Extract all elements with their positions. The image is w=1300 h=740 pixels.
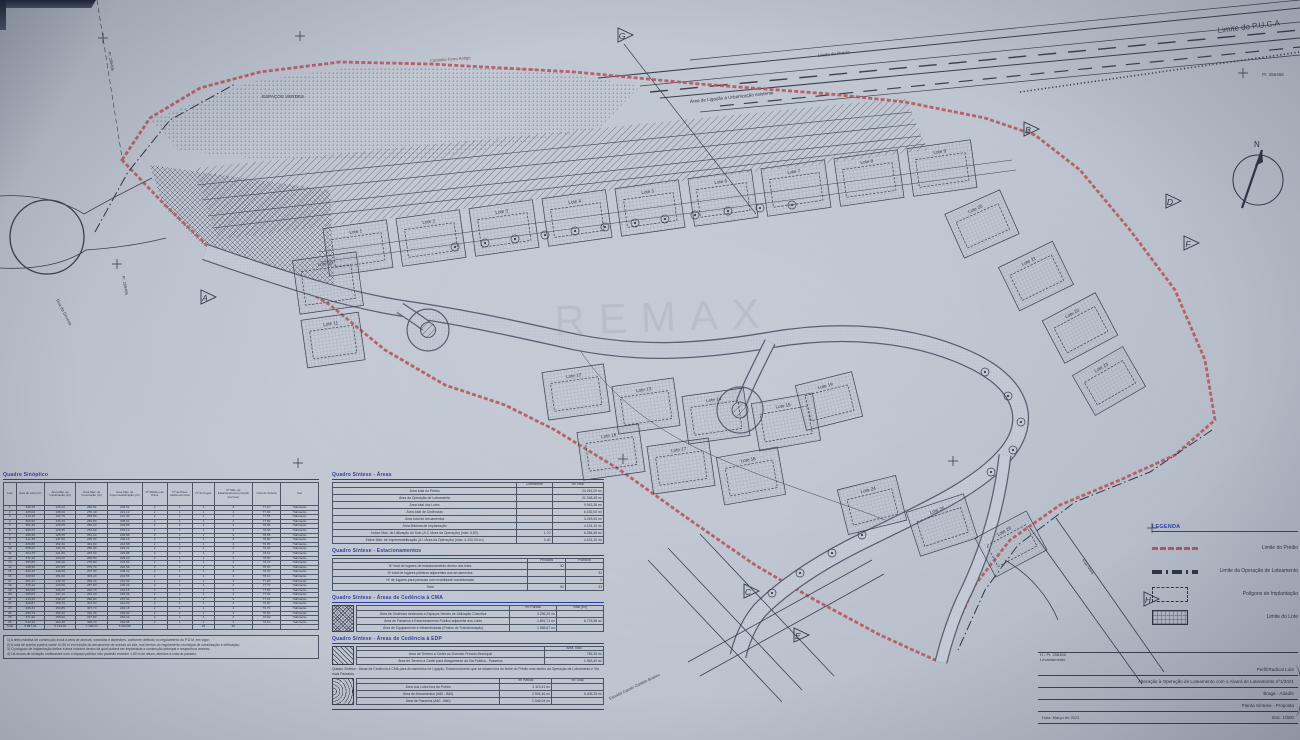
table-row: Índice Máx. de Utilização do Solo (A.C./…	[333, 529, 604, 536]
diagonal-swatch	[332, 646, 354, 666]
puca-label: Limite do P.U.C.A	[1217, 18, 1281, 35]
mark-topleft-label: Pr. 256495	[107, 51, 115, 72]
lot: Lote 4	[542, 190, 612, 246]
quadro-cedencia-edp-title: Quadro Síntese - Áreas de Cedência à EDP	[332, 636, 604, 644]
lot: Lote 13	[612, 378, 680, 434]
table-row: Índice Máx. de Impermeabilização (A.I./Á…	[333, 536, 604, 543]
lot: Lote 9	[907, 140, 977, 196]
quadro-areas-title: Quadro Síntese - Áreas	[332, 472, 604, 480]
survey-cross-icon	[293, 458, 303, 468]
section-letter: B	[1025, 125, 1031, 135]
lot-boundary	[999, 241, 1074, 310]
arcs-swatch	[332, 678, 354, 705]
dash-dot-line-key	[1152, 564, 1198, 578]
street-left-label: Rua da Devesa	[55, 298, 73, 326]
section-letter: G	[619, 31, 626, 41]
lot: Lote 17	[647, 438, 715, 494]
quadro-areas-table: Coeficientem² Total Área total do Prédio…	[332, 482, 604, 544]
quadro-cedencia-cma-title: Quadro Síntese - Áreas de Cedência à CMA	[332, 595, 604, 603]
table-row: Área de Equipamento e Infraestruturas (P…	[357, 624, 604, 631]
lot: Lote 25	[906, 494, 977, 556]
section-letter: A	[201, 293, 208, 303]
lot: Lote 22	[1042, 293, 1118, 364]
title-block-row1: Perfil/Radical Lote	[1038, 664, 1298, 676]
lot: Lote 14	[682, 388, 750, 444]
lot-boundary	[945, 190, 1019, 258]
roundabout	[0, 0, 166, 274]
table-row: Área Máxima de Implantação4.151,10 m²	[333, 522, 604, 529]
quadro-estacionamentos-table: PrivadosPúblicos Nº total de lugares de …	[332, 558, 604, 592]
photo-edge-left	[0, 0, 6, 30]
quadro-sinoptico-title: Quadro Sinóptico	[3, 472, 319, 480]
survey-cross-icon	[295, 31, 305, 41]
table-row: Área da Operação de Loteamento21.048,45 …	[333, 494, 604, 501]
title-block: H.- Pr. 256466 Levantamento Perfil/Radic…	[1038, 652, 1298, 724]
notes-box: 1) A área máxima de construção inclui a …	[3, 635, 319, 659]
tree-icon	[756, 204, 764, 212]
lot: Lote 2	[396, 210, 466, 266]
section-marker: E	[794, 628, 809, 642]
dashed-rect-key	[1152, 587, 1198, 601]
street-bottom-label: Estrada Camilo Castelo Branco	[608, 672, 661, 701]
grid-rect-key	[1152, 610, 1198, 624]
red-dash-line-key	[1152, 541, 1198, 555]
section-letter: H	[1145, 595, 1152, 605]
espacos-verdes-label: ESPAÇOS VERDES	[262, 94, 304, 99]
section-marker: C	[744, 584, 759, 598]
table-row: Total9.857,433.744,327.488,645.990,89--2…	[4, 625, 319, 630]
table-row: Área total dos Lotes9.943,36 m²	[333, 501, 604, 508]
table-row: Área de Cedência destinada a Espaços Ver…	[357, 610, 604, 617]
quadro-cedencia-cma-table: m² ParcialTotal (m²) Área de Cedência de…	[356, 605, 604, 632]
lot: Lote 21	[999, 241, 1074, 310]
table-header-row: LoteÁrea do Lote (m²)Área Máx. de Implan…	[4, 483, 319, 506]
north-arrow: N	[1233, 140, 1283, 208]
legend-item-operacao: Limite da Operação de Loteamento	[1152, 564, 1298, 578]
section-letter: C	[745, 587, 752, 597]
lot: Lote 7	[761, 160, 831, 216]
crosshatch-swatch	[332, 605, 354, 632]
lot: Lote 23	[1072, 347, 1145, 416]
section-marker: F	[1184, 236, 1199, 250]
table-row: Área dos Lotes fora do Prédio3.119,41 m²	[357, 683, 604, 690]
watermark: REMAX	[554, 289, 775, 344]
lot: Lote 5	[615, 180, 685, 236]
date-label: Data: Março de 2023	[1042, 715, 1079, 720]
table-row: Área total de Cedências6.152,00 m²	[333, 508, 604, 515]
lot-boundary	[906, 494, 977, 556]
north-letter: N	[1254, 140, 1260, 149]
table-row: Nº total de lugares de estacionamento de…	[333, 563, 604, 570]
limite-predio-label: Limite do Prédio	[818, 50, 851, 58]
table-row: Área de Terreno a Ceder para Alargamento…	[357, 658, 604, 665]
survey-cross-icon	[112, 259, 122, 269]
top-road	[598, 0, 1300, 112]
table-row: Nº total de lugares públicos adjacentes …	[333, 570, 604, 577]
puca-limit-line: Limite do P.U.C.A Limite do Prédio Pr. 2…	[818, 18, 1300, 92]
survey-cross-icon	[1238, 68, 1248, 78]
table-row: Área total de Arruamentos3.253,60 m²	[333, 515, 604, 522]
cedencia-paragraph: Quadro Síntese - Áreas de Cedência à CMA…	[332, 667, 604, 676]
section-marker: G	[618, 28, 633, 42]
quadro-estacionamentos-title: Quadro Síntese - Estacionamentos	[332, 548, 604, 556]
photo-edge-top	[0, 0, 96, 8]
lot-boundary	[795, 372, 862, 431]
title-block-row2: Alteração à Operação de Loteamento com o…	[1038, 676, 1298, 688]
mark-topright-label: Pr. 256466	[1262, 72, 1284, 77]
lot: Lote 18	[716, 447, 785, 505]
lot-boundary	[716, 447, 785, 505]
legend-title: LEGENDA	[1152, 524, 1298, 532]
legend-item-limite-predio: Limite do Prédio	[1152, 541, 1298, 555]
table-row: Nº de lugares para pessoas com mobilidad…	[333, 577, 604, 584]
process-number: H.- Pr. 256466 Levantamento	[1038, 653, 1298, 664]
street-right-label: Rua Nova	[1081, 558, 1096, 576]
quadro-sinoptico-panel: Quadro Sinóptico LoteÁrea do Lote (m²)Ár…	[3, 472, 319, 659]
table-row: Área de Terreno a Ceder ao Domínio Priva…	[357, 651, 604, 658]
table-row: Área de Passeios (A60 - B60)1.046,04 m²	[357, 697, 604, 704]
table-row: Total5233	[333, 584, 604, 591]
table-row: Área de Arruamentos (A60 - B60)2.904,46 …	[357, 690, 604, 697]
quadro-sinoptico-table: LoteÁrea do Lote (m²)Área Máx. de Implan…	[3, 482, 319, 630]
section-letter: F	[1185, 239, 1191, 249]
bottom-streets	[648, 534, 884, 702]
lot: Lote 20	[945, 190, 1019, 258]
lot: Lote 19	[795, 372, 862, 431]
legend-item-poligono: Polígono de Implantação	[1152, 587, 1298, 601]
lot: Lote 10	[293, 252, 364, 314]
caminho-label: Caminho Ferro Antigo	[430, 55, 472, 63]
bracket-mark	[1287, 665, 1300, 717]
title-block-row4: Planta Síntese - Proposta	[1038, 700, 1298, 712]
section-marker: A	[201, 290, 216, 304]
cul-de-sac-1	[407, 309, 449, 351]
lot: Lote 8	[834, 150, 904, 206]
title-block-row3: Braga - Adaúfe	[1038, 688, 1298, 700]
stack-end-rule	[332, 709, 604, 710]
legend-panel: LEGENDA Limite do Prédio Limite da Opera…	[1152, 524, 1298, 624]
section-letter: D	[1167, 197, 1173, 207]
site-plan-sheet: { "map": { "watermark": "REMAX", "north"…	[0, 0, 1300, 740]
lot-boundary	[1072, 347, 1145, 416]
table-row: Área total do Prédio24.261,00 m²	[333, 487, 604, 494]
title-block-row5: Data: Março de 2023 Esc. 1/500	[1038, 712, 1298, 724]
table-row: Área de Passeios e Estacionamento Públic…	[357, 617, 604, 624]
survey-cross-icon	[948, 456, 958, 466]
survey-cross-icon	[98, 33, 108, 43]
lot: Lote 12	[542, 364, 610, 420]
section-marker: D	[1166, 194, 1181, 208]
quadro-fora-poligono-table: m² Parcialm² Total Área dos Lotes fora d…	[356, 678, 604, 705]
legend-item-lote: Limite do Lote	[1152, 610, 1298, 624]
section-letter: E	[795, 631, 801, 641]
quadro-sintese-stack: Quadro Síntese - Áreas Coeficientem² Tot…	[332, 472, 604, 710]
mark-left-label: Pr. 256495	[121, 275, 129, 296]
quadro-cedencia-edp-table: Área Total Área de Terreno a Ceder ao Do…	[356, 646, 604, 666]
lot: Lote 11	[301, 312, 365, 368]
lot: Lote 3	[469, 200, 539, 256]
lot: Lote 6	[688, 170, 758, 226]
